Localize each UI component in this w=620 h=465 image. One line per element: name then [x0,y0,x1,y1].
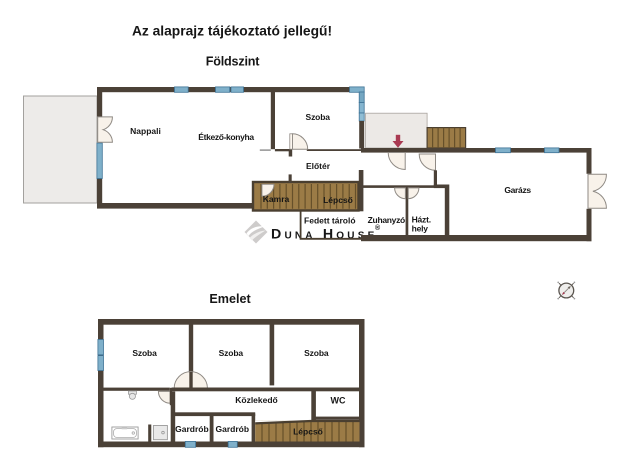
svg-text:Étkező-konyha: Étkező-konyha [198,132,254,142]
svg-text:Előtér: Előtér [306,161,331,171]
svg-text:WC: WC [331,396,346,406]
svg-text:Szoba: Szoba [132,348,157,358]
svg-text:Gardrób: Gardrób [175,424,209,434]
svg-text:Gardrób: Gardrób [216,424,250,434]
svg-text:Nappali: Nappali [130,126,161,136]
svg-text:Szoba: Szoba [304,348,329,358]
svg-text:Emelet: Emelet [209,292,251,306]
svg-text:Földszint: Földszint [206,55,260,69]
svg-text:Kamra: Kamra [263,194,290,204]
svg-text:Az alaprajz tájékoztató jelleg: Az alaprajz tájékoztató jellegű! [132,23,332,38]
svg-text:Zuhanyzó: Zuhanyzó [368,215,405,225]
svg-text:hely: hely [412,224,429,234]
svg-text:Lépcső: Lépcső [323,195,353,205]
svg-text:Szoba: Szoba [306,112,331,122]
svg-text:Lépcső: Lépcső [293,426,323,436]
svg-text:Közlekedő: Közlekedő [235,395,278,405]
svg-text:Szoba: Szoba [219,348,244,358]
svg-text:Fedett tároló: Fedett tároló [304,216,355,226]
svg-text:Garázs: Garázs [504,185,531,195]
